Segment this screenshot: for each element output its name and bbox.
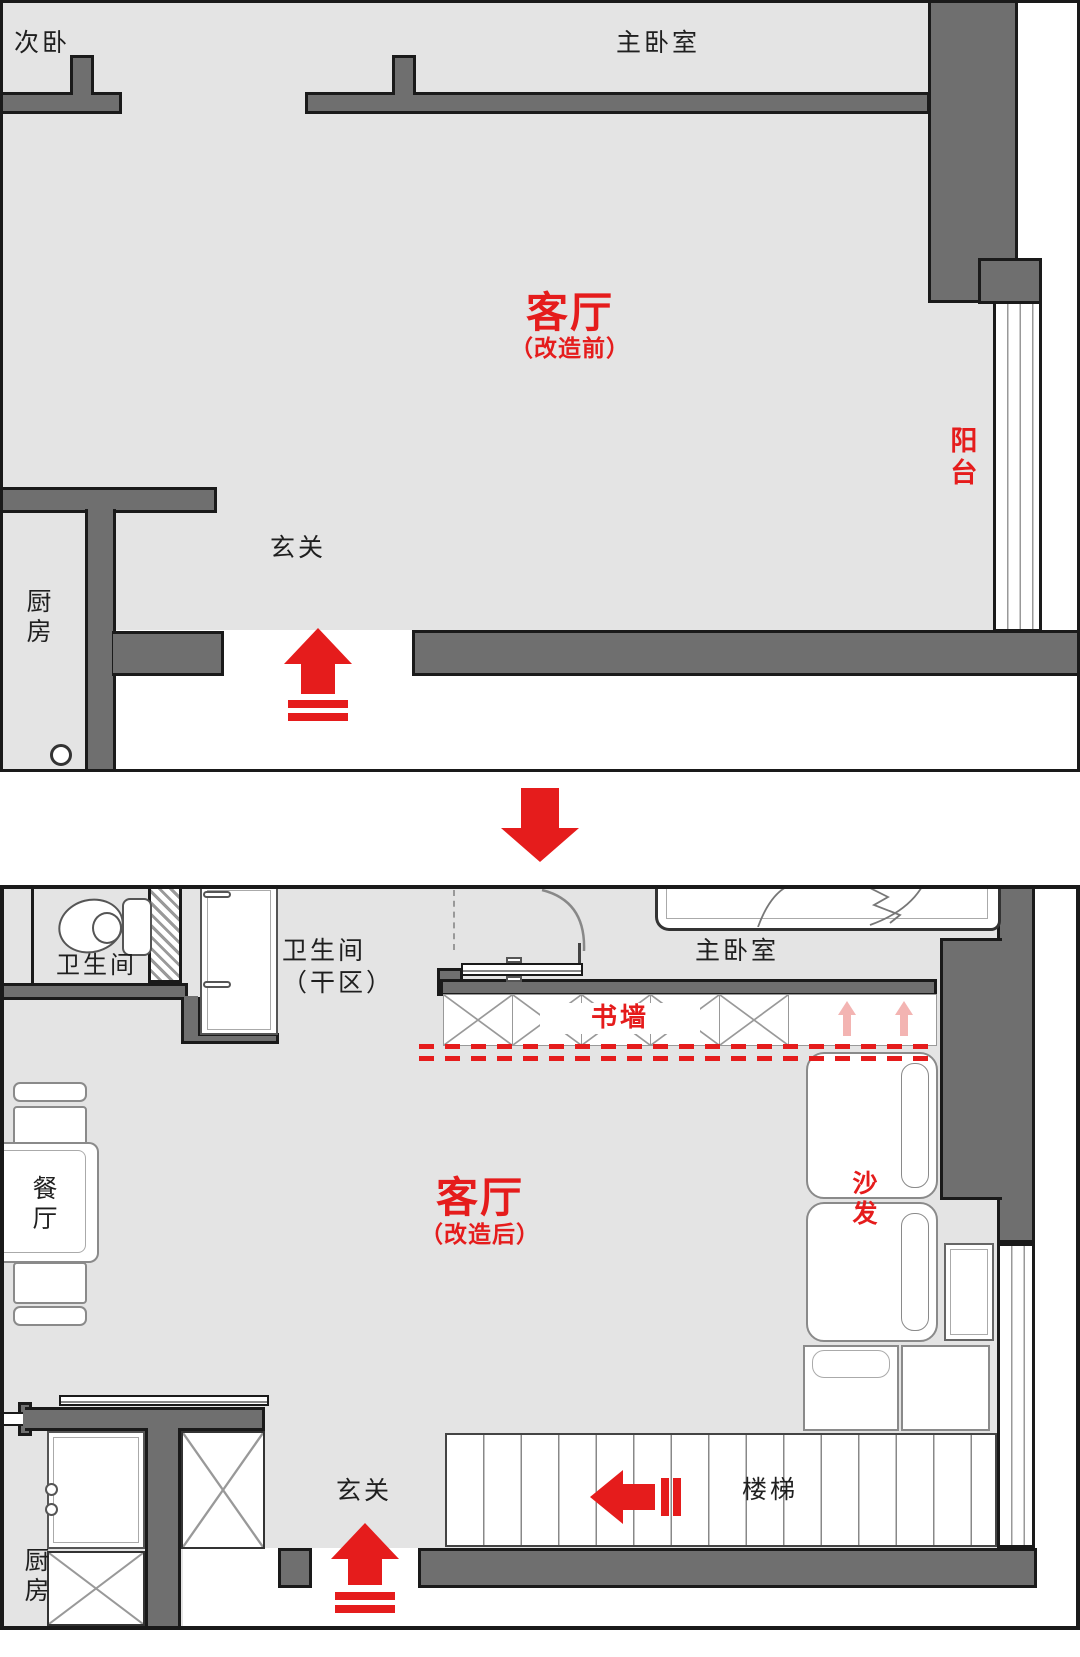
wall-segment [278,1548,312,1588]
entry-arrow-icon [284,628,352,664]
kitchen-window [3,1412,23,1426]
plan-after: 书墙 沙发 餐厅 客厅 （改造后） 卫生间 卫生间 [0,885,1080,1630]
cabinet-knob [45,1483,58,1496]
shelf-x-unit [444,995,513,1045]
vanity-cabinet [200,885,278,1035]
toilet-tank [122,898,152,956]
door-handle [506,976,522,982]
plan-before: 次卧 主卧室 客厅 （改造前） 阳台 玄关 厨房 [0,0,1080,772]
bed [655,885,1001,931]
room-label-bathroom: 卫生间 [56,951,137,980]
dining-chair [13,1262,87,1304]
airflow-arrow-icon [895,1001,913,1015]
hatched-wall [148,885,182,983]
living-room-note: （改造后） [360,1222,600,1250]
dining-chair [13,1082,87,1102]
bathroom-wall-line [31,885,34,983]
toilet-bowl-inner [92,912,122,944]
room-label-stairs: 楼梯 [742,1475,798,1505]
cabinet-handle [203,891,231,898]
wall-segment [0,92,122,114]
door-handle [506,957,522,963]
floor-plan-comparison: 次卧 主卧室 客厅 （改造前） 阳台 玄关 厨房 [0,0,1080,1657]
window [997,1243,1035,1548]
stairs-arrow-icon [590,1470,623,1524]
blanket-sketch [718,885,993,927]
cabinet-knob [45,1503,58,1516]
shelf-x-unit [720,995,789,1045]
side-table [944,1243,994,1341]
kitchen-cabinet-x [47,1551,145,1626]
room-label-entry: 玄关 [336,1476,392,1506]
room-label-living-room: 客厅 [360,1173,600,1223]
exterior-area [1035,885,1080,1630]
wall-segment [25,1407,265,1431]
sliding-door [461,963,583,976]
entry-arrow-icon [331,1523,399,1559]
storage-box [901,1345,990,1431]
door-swing-arc [498,889,590,953]
dining-chair [13,1306,87,1326]
cabinet-handle [203,981,231,988]
door-dashed-line [453,890,455,950]
room-label-entry: 玄关 [270,533,326,563]
airflow-arrow-icon [838,1001,856,1015]
room-label-living-room: 客厅 [455,288,685,338]
room-label-kitchen: 厨房 [20,1547,50,1607]
balcony-window [993,301,1042,632]
storage-box [803,1345,899,1431]
transition-arrow-icon [521,788,559,830]
sofa-armrest [901,1063,929,1188]
wall-segment [412,630,1080,676]
sofa-label: 沙发 [848,1170,878,1230]
wall-segment [940,938,1002,1200]
floor-drain-icon [50,744,72,766]
room-label-second-bedroom: 次卧 [14,28,70,58]
stairs [445,1433,997,1547]
room-label-kitchen: 厨房 [22,588,52,648]
wall-segment [112,631,224,676]
room-label-master-bedroom: 主卧室 [616,28,700,58]
sliding-door [59,1395,269,1406]
wall-segment [418,1548,1037,1588]
wall-segment [181,997,201,1037]
room-label-balcony: 阳台 [944,426,976,490]
living-room-note: （改造前） [455,336,685,364]
shoe-cabinet [181,1431,265,1549]
removed-wall-dashed-line [419,1044,937,1049]
kitchen-cabinet [47,1431,145,1549]
room-label-master-bedroom: 主卧室 [695,936,779,966]
room-label-bathroom-dry: 卫生间 （干区） [282,935,394,999]
room-label-dining: 餐厅 [28,1175,58,1235]
wall-segment [145,1429,181,1630]
removed-wall-dashed-line [419,1056,937,1061]
book-wall-label: 书墙 [540,1003,700,1034]
wall-segment [0,983,188,1000]
sofa-armrest [901,1213,929,1331]
